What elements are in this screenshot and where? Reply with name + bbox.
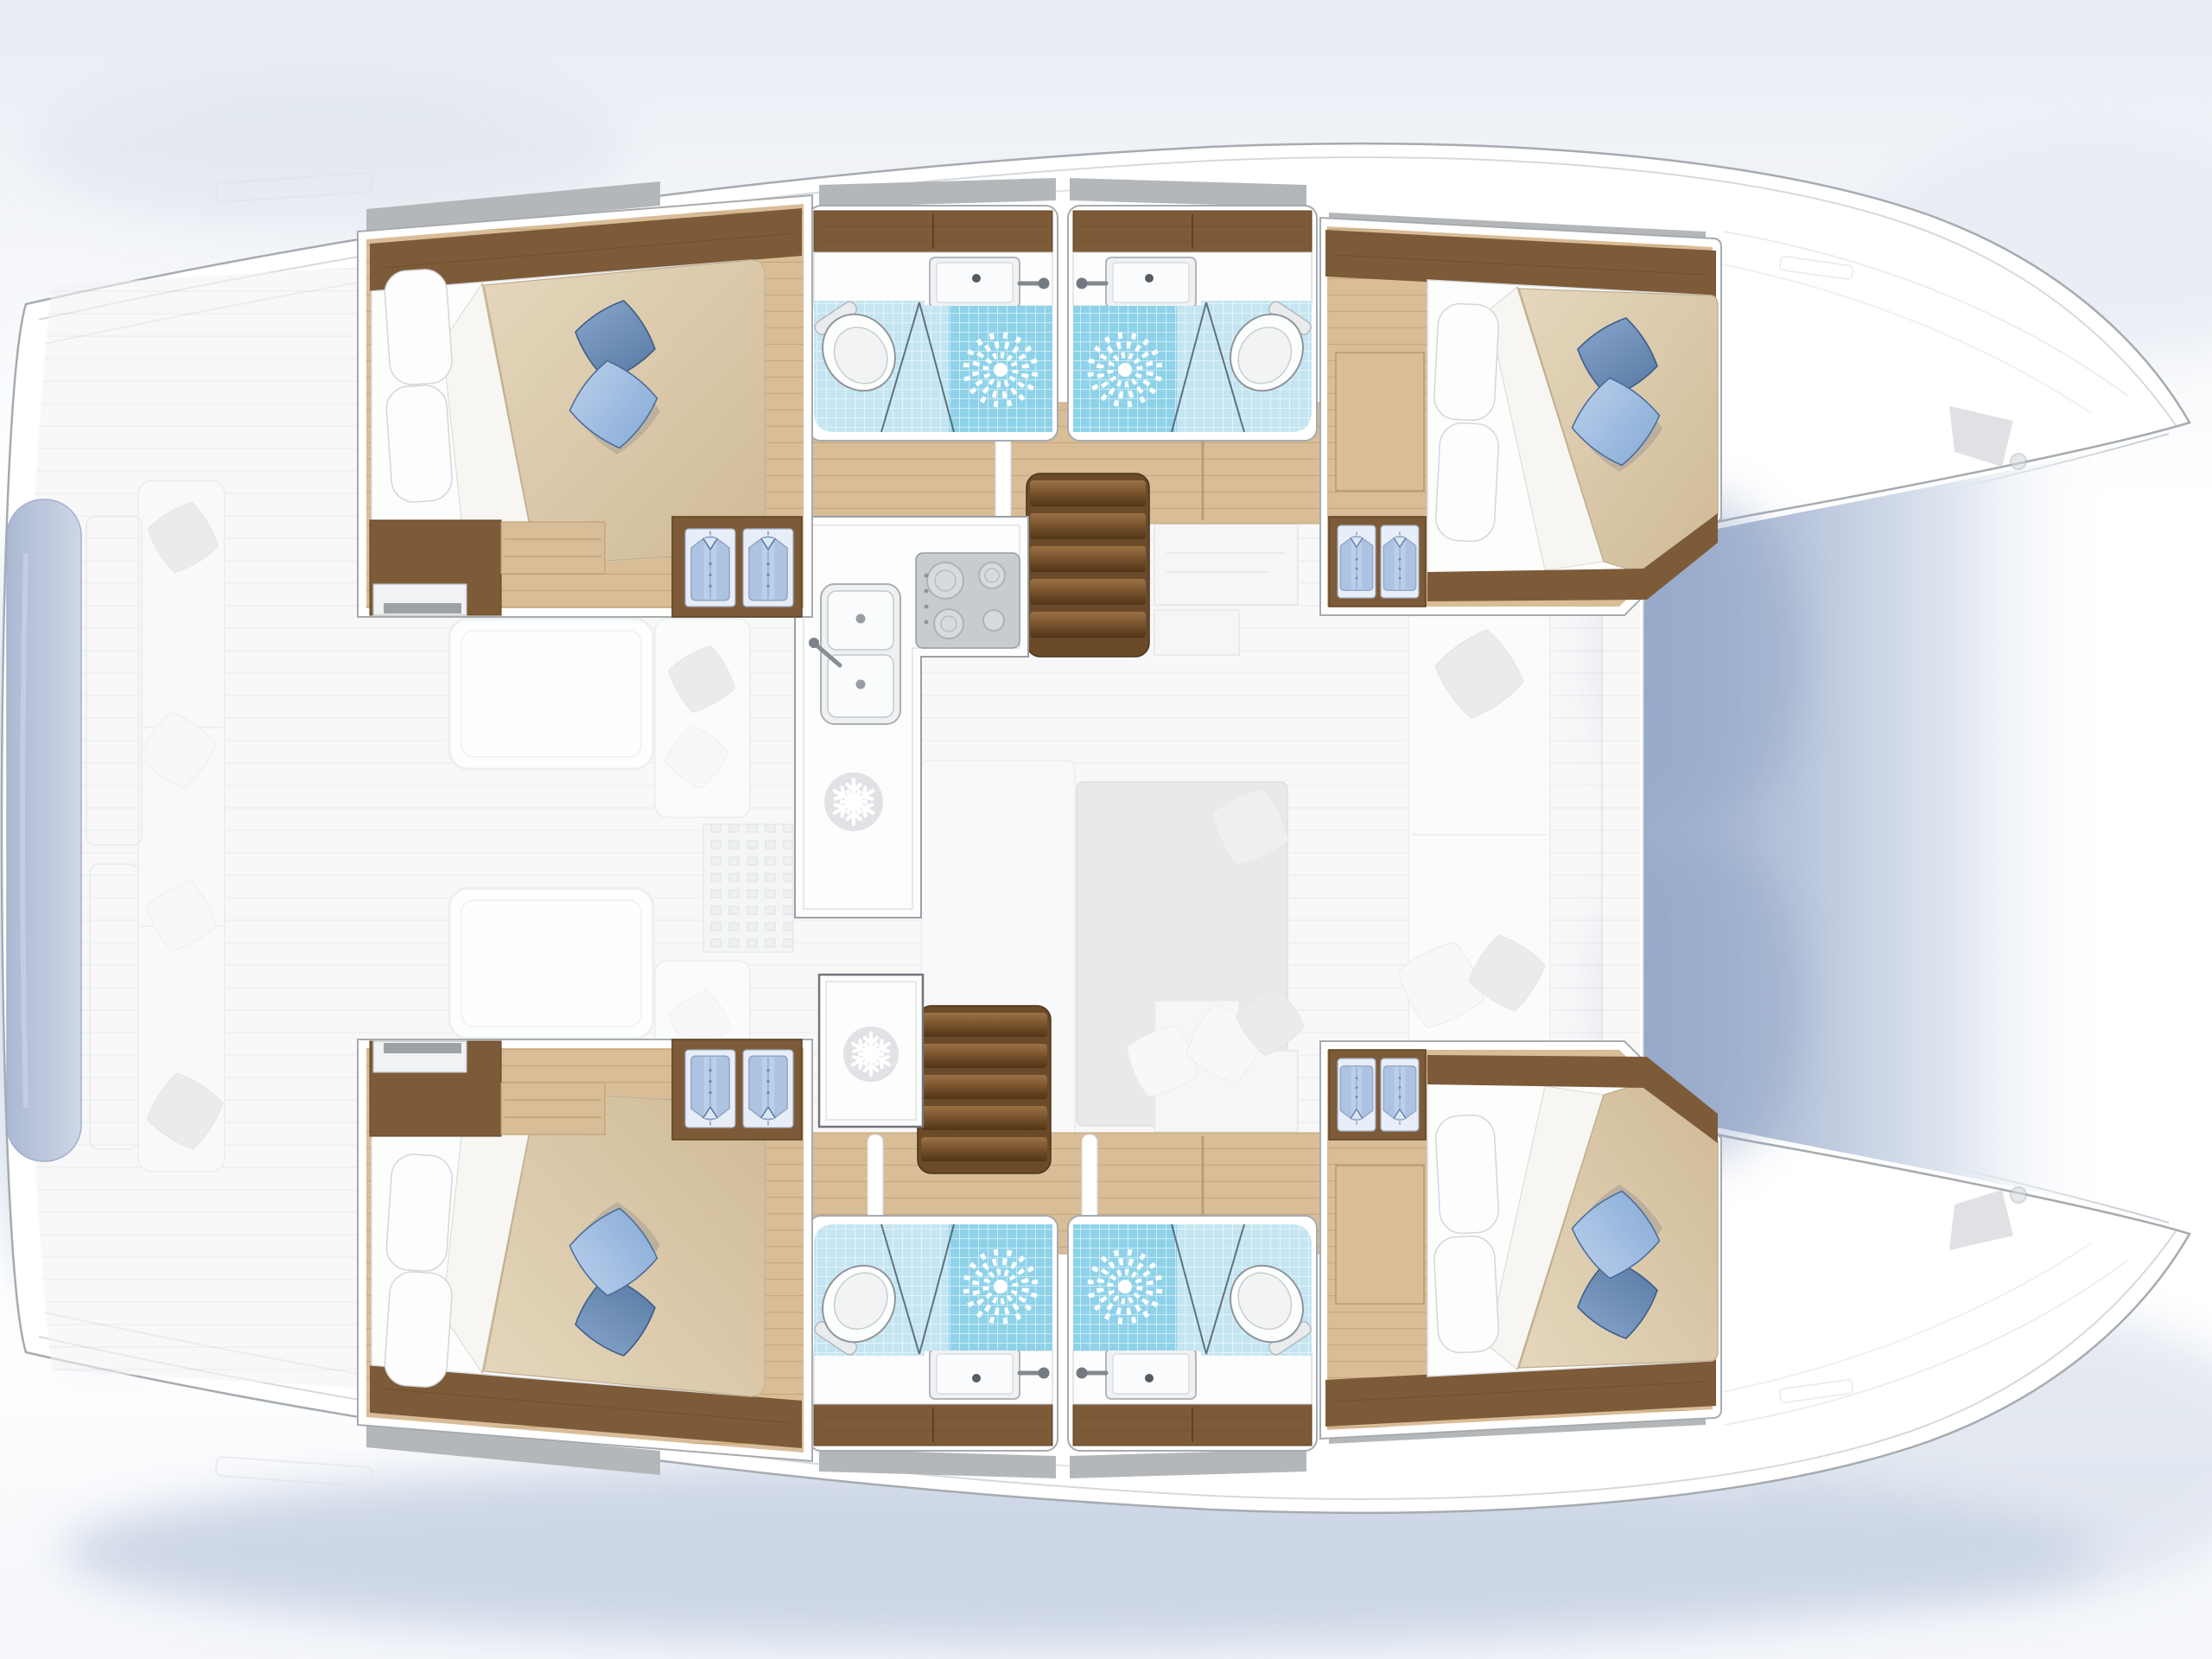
cabin-port-aft [358,181,812,617]
stairs-starboard [918,1006,1051,1173]
cabin-port-fwd [1320,213,1721,615]
floorplan-canvas [0,0,2212,1659]
cabin-stbd-fwd [1320,1041,1721,1444]
vent-grid [703,824,793,952]
galley-sink [809,584,900,724]
head-port-fwd [1068,178,1322,441]
console [1154,524,1298,605]
head-port-aft [804,178,1058,441]
tender [7,499,81,1161]
cooktop [916,553,1020,648]
cabin-stbd-aft [358,1039,812,1475]
freezer [819,975,923,1127]
catamaran-floorplan [0,0,2212,1659]
head-stbd-fwd [1068,1216,1322,1478]
stairs-port [1027,474,1149,657]
head-stbd-aft [804,1216,1058,1478]
refrigerator [824,772,883,831]
